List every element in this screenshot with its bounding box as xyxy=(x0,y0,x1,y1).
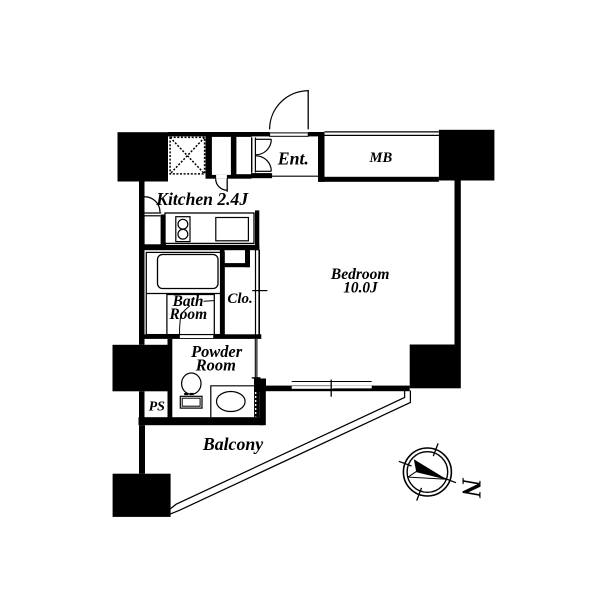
svg-text:Balcony: Balcony xyxy=(202,434,263,454)
svg-text:PS: PS xyxy=(149,400,166,415)
svg-text:Clo.: Clo. xyxy=(227,291,252,307)
svg-text:Room: Room xyxy=(195,356,236,375)
svg-text:Room: Room xyxy=(168,306,207,323)
svg-text:N: N xyxy=(456,477,486,499)
svg-text:Kitchen 2.4J: Kitchen 2.4J xyxy=(155,189,249,209)
svg-text:Ent.: Ent. xyxy=(277,149,309,169)
svg-text:10.0J: 10.0J xyxy=(343,280,379,297)
svg-text:MB: MB xyxy=(369,150,393,166)
